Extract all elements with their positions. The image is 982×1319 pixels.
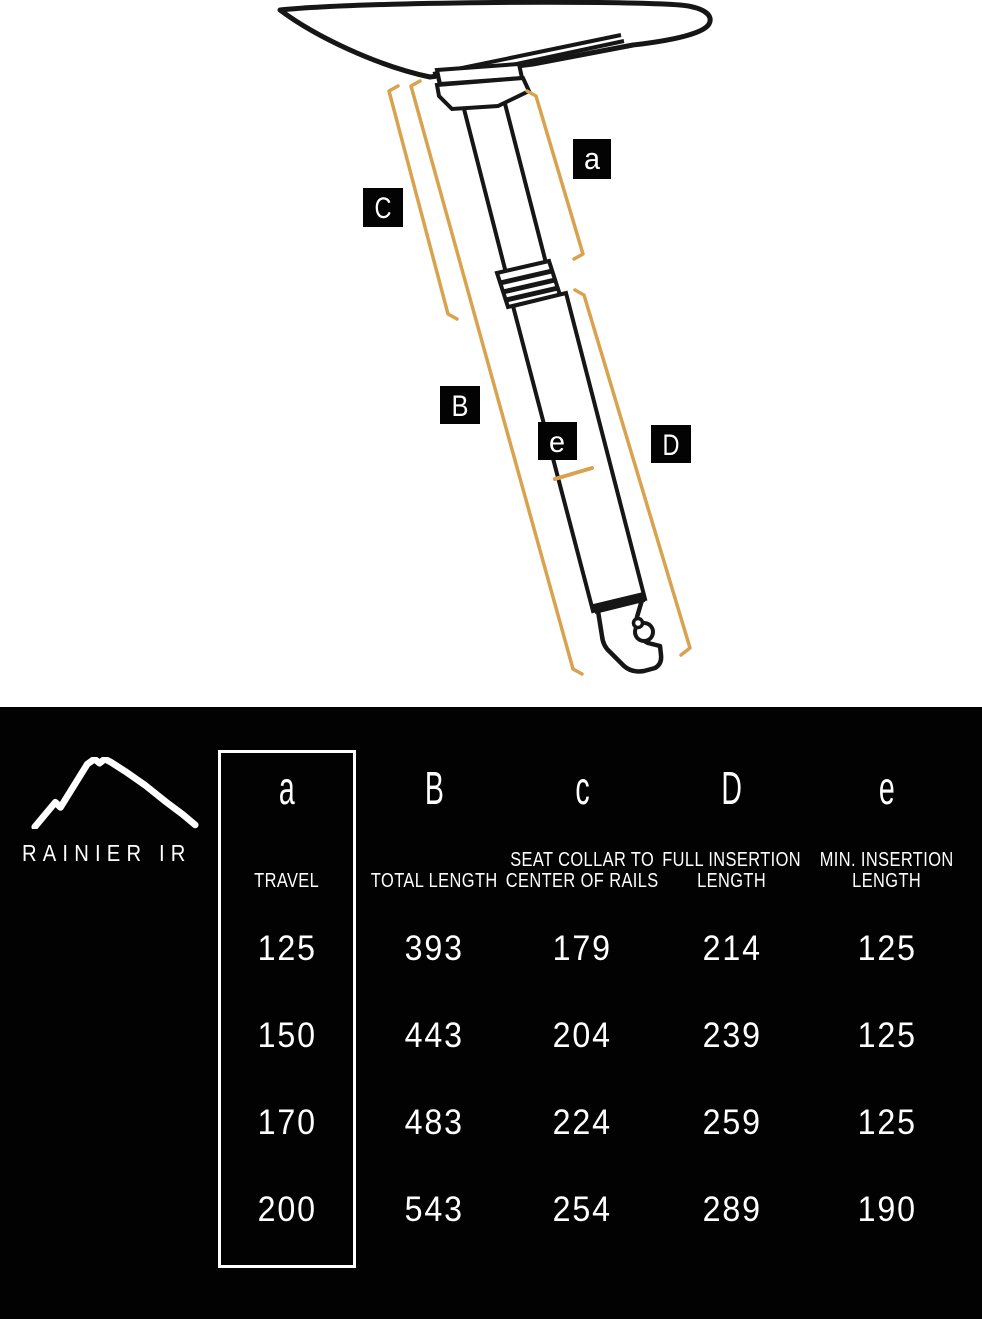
spec-value-row1-c: 179 — [512, 905, 652, 992]
cable-barrel-inner — [634, 619, 643, 628]
diagram-label-a: a — [573, 139, 611, 179]
seatpost-clamp — [437, 78, 529, 109]
brand-name: RAINIER IR — [22, 840, 185, 867]
lower-post-tube — [513, 293, 645, 611]
column-title-c: SEAT COLLAR TOCENTER OF RAILS — [512, 825, 652, 905]
brand-logo: RAINIER IR — [22, 757, 207, 867]
diagram-label-e-text: e — [549, 426, 565, 459]
diagram-label-a-text: a — [584, 141, 601, 176]
seatpost-diagram-svg: a C B e D — [0, 0, 982, 707]
spec-value-row4-B: 543 — [356, 1166, 512, 1253]
diagram-label-c: C — [363, 188, 403, 227]
spec-value-row1-e: 125 — [812, 905, 962, 992]
diagram-label-e: e — [538, 422, 577, 460]
product-spec-image: a C B e D RAINIER I — [0, 0, 982, 1319]
column-title-B: TOTAL LENGTH — [356, 825, 512, 905]
spec-value-row2-D: 239 — [652, 992, 812, 1079]
diagram-label-d-text: D — [663, 429, 680, 462]
column-letter-e: e — [812, 750, 962, 825]
spec-value-row4-a: 200 — [218, 1166, 356, 1253]
diagram-label-b-text: B — [452, 390, 469, 423]
spec-value-row1-D: 214 — [652, 905, 812, 992]
diagram-label-d: D — [651, 425, 691, 463]
spec-value-row4-D: 289 — [652, 1166, 812, 1253]
spec-value-row2-e: 125 — [812, 992, 962, 1079]
spec-value-row4-e: 190 — [812, 1166, 962, 1253]
column-title-D: FULL INSERTIONLENGTH — [652, 825, 812, 905]
spec-value-row4-c: 254 — [512, 1166, 652, 1253]
diagram-label-b: B — [440, 386, 480, 424]
column-title-a: TRAVEL — [218, 825, 356, 905]
spec-table-section: RAINIER IR aTRAVELBTOTAL LENGTHcSEAT COL… — [0, 707, 982, 1319]
upper-post-tube — [463, 96, 546, 273]
spec-value-row3-c: 224 — [512, 1079, 652, 1166]
spec-value-row3-a: 170 — [218, 1079, 356, 1166]
column-letter-c: c — [512, 750, 652, 825]
spec-value-row1-a: 125 — [218, 905, 356, 992]
seatpost-diagram: a C B e D — [0, 0, 982, 707]
spec-value-row1-B: 393 — [356, 905, 512, 992]
spec-grid: aTRAVELBTOTAL LENGTHcSEAT COLLAR TOCENTE… — [218, 750, 962, 1253]
diagram-label-c-text: C — [375, 192, 392, 225]
column-title-e: MIN. INSERTIONLENGTH — [812, 825, 962, 905]
column-letter-a: a — [218, 750, 356, 825]
spec-value-row3-e: 125 — [812, 1079, 962, 1166]
column-letter-B: B — [356, 750, 512, 825]
spec-value-row2-B: 443 — [356, 992, 512, 1079]
spec-value-row2-a: 150 — [218, 992, 356, 1079]
column-letter-D: D — [652, 750, 812, 825]
spec-value-row3-D: 259 — [652, 1079, 812, 1166]
spec-value-row2-c: 204 — [512, 992, 652, 1079]
mountain-logo-icon — [30, 757, 200, 829]
spec-value-row3-B: 483 — [356, 1079, 512, 1166]
